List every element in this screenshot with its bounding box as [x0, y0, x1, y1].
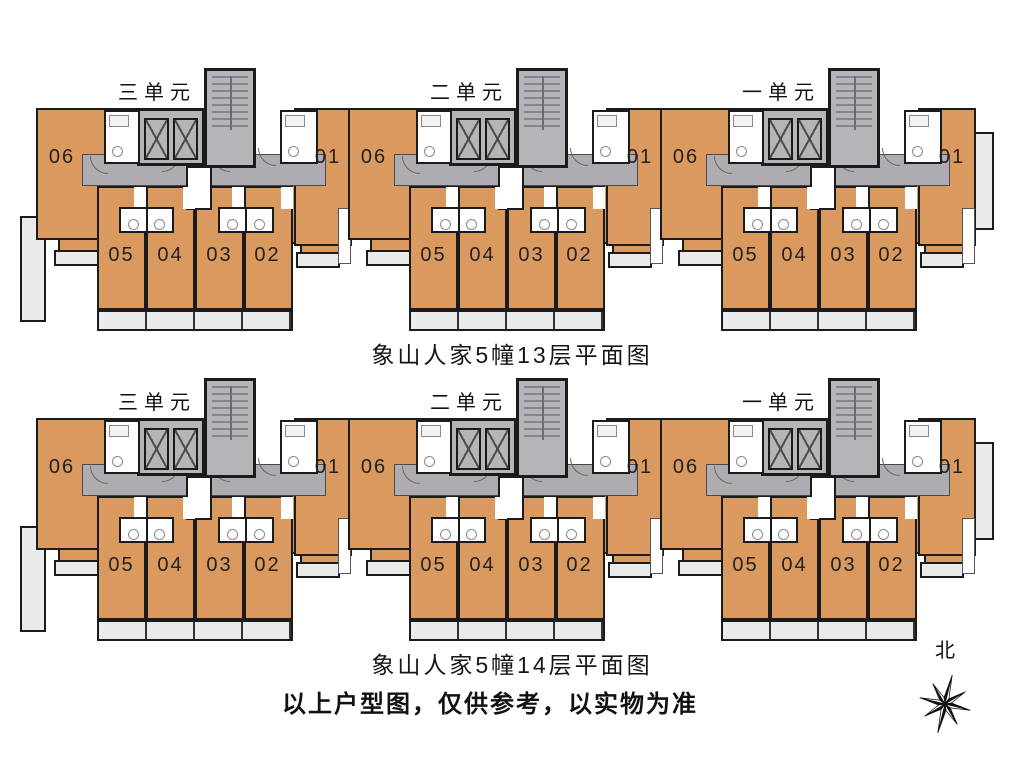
apartment-06-balcony — [54, 560, 100, 576]
elevator-icon — [173, 118, 198, 160]
apartment-number: 01 — [930, 456, 974, 479]
floor-plan-13f: 三单元 06 05 04 — [32, 68, 992, 370]
unit: 二单元 06 05 04 — [346, 378, 664, 646]
unit: 一单元 06 05 04 — [658, 378, 976, 646]
elevator-bank — [761, 108, 829, 166]
elevator-icon — [485, 118, 510, 160]
unit: 三单元 06 05 04 — [34, 68, 352, 336]
apartment-number: 03 — [509, 554, 554, 577]
floor-plan-canvas-14f: 三单元 06 05 04 — [32, 378, 992, 646]
stair-rail-icon — [230, 76, 232, 130]
elevator-icon — [485, 428, 510, 470]
unit: 三单元 06 05 04 — [34, 378, 352, 646]
bathrooms-05-04 — [119, 207, 174, 233]
apartment-06-balcony — [366, 560, 412, 576]
apartment-06-bathroom — [728, 420, 764, 474]
apartment-number: 03 — [821, 244, 866, 267]
apartment-number: 03 — [821, 554, 866, 577]
apartment-06-balcony — [54, 250, 100, 266]
unit: 一单元 06 05 04 — [658, 68, 976, 336]
disclaimer-text: 以上户型图，仅供参考，以实物为准 — [0, 684, 980, 719]
unit: 二单元 06 05 04 — [346, 68, 664, 336]
floor-plan-canvas-13f: 三单元 06 05 04 — [32, 68, 992, 336]
compass-north-label: 北 — [912, 634, 978, 663]
bathrooms-03-02 — [530, 207, 586, 233]
stair-rail-icon — [230, 386, 232, 440]
apartment-number: 03 — [197, 244, 242, 267]
staircase — [204, 68, 256, 168]
end-balcony-right — [974, 132, 994, 230]
end-balcony-right — [974, 442, 994, 540]
apartment-number: 04 — [772, 554, 817, 577]
apartment-06-balcony — [678, 560, 724, 576]
apartment-01-balcony — [296, 252, 340, 268]
apartment-number: 02 — [557, 554, 602, 577]
apartment-number: 02 — [557, 244, 602, 267]
balcony-band — [409, 620, 605, 641]
apartment-number: 04 — [772, 244, 817, 267]
apartment-06-bathroom — [416, 420, 452, 474]
stair-rail-icon — [542, 386, 544, 440]
balcony-band — [97, 620, 293, 641]
stair-rail-icon — [854, 386, 856, 440]
elevator-icon — [768, 118, 793, 160]
light-well-shaft — [962, 208, 975, 264]
apartment-01-balcony — [296, 562, 340, 578]
bathrooms-03-02 — [218, 207, 274, 233]
staircase — [828, 378, 880, 478]
apartment-number: 01 — [930, 146, 974, 169]
balcony-band — [721, 310, 917, 331]
elevator-bank — [137, 418, 205, 476]
bathrooms-03-02 — [218, 517, 274, 543]
floor-plan-sheet: 三单元 06 05 04 — [0, 0, 1024, 768]
apartment-number: 06 — [352, 146, 396, 169]
apartment-number: 04 — [460, 554, 505, 577]
elevator-icon — [173, 428, 198, 470]
entry-closets — [721, 187, 917, 209]
bathrooms-05-04 — [743, 517, 798, 543]
apartment-number: 01 — [618, 456, 662, 479]
apartment-number: 04 — [460, 244, 505, 267]
elevator-icon — [456, 118, 481, 160]
apartment-number: 01 — [618, 146, 662, 169]
bathrooms-03-02 — [842, 517, 898, 543]
floor-plan-14f: 三单元 06 05 04 — [32, 378, 992, 680]
balcony-band — [409, 310, 605, 331]
apartment-number: 06 — [664, 146, 708, 169]
apartment-number: 02 — [869, 554, 914, 577]
apartment-number: 05 — [99, 554, 144, 577]
apartment-06-bathroom — [104, 420, 140, 474]
apartment-06-bathroom — [416, 110, 452, 164]
apartment-number: 02 — [245, 554, 290, 577]
apartment-number: 05 — [723, 554, 768, 577]
bathrooms-05-04 — [119, 517, 174, 543]
elevator-icon — [797, 428, 822, 470]
apartment-number: 02 — [245, 244, 290, 267]
apartment-number: 06 — [40, 146, 84, 169]
bathrooms-03-02 — [530, 517, 586, 543]
apartment-number: 04 — [148, 244, 193, 267]
elevator-icon — [456, 428, 481, 470]
apartment-01-balcony — [608, 252, 652, 268]
stair-rail-icon — [542, 76, 544, 130]
bathrooms-05-04 — [431, 207, 486, 233]
apartment-number: 03 — [509, 244, 554, 267]
apartment-number: 06 — [352, 456, 396, 479]
elevator-bank — [137, 108, 205, 166]
apartment-number: 01 — [306, 146, 350, 169]
apartment-06-balcony — [678, 250, 724, 266]
compass: 北 — [912, 634, 978, 748]
apartment-06-balcony — [366, 250, 412, 266]
elevator-bank — [449, 418, 517, 476]
apartment-01-balcony — [920, 252, 964, 268]
apartment-number: 06 — [664, 456, 708, 479]
apartment-number: 03 — [197, 554, 242, 577]
staircase — [516, 378, 568, 478]
compass-rose-icon — [915, 665, 975, 743]
elevator-icon — [144, 428, 169, 470]
staircase — [516, 68, 568, 168]
entry-closets — [97, 187, 293, 209]
light-well-shaft — [962, 518, 975, 574]
bathrooms-03-02 — [842, 207, 898, 233]
elevator-icon — [144, 118, 169, 160]
entry-closets — [97, 497, 293, 519]
staircase — [828, 68, 880, 168]
balcony-band — [97, 310, 293, 331]
apartment-number: 02 — [869, 244, 914, 267]
elevator-bank — [449, 108, 517, 166]
elevator-bank — [761, 418, 829, 476]
floor-caption-14f: 象山人家5幢14层平面图 — [32, 646, 992, 680]
apartment-number: 05 — [723, 244, 768, 267]
apartment-number: 06 — [40, 456, 84, 479]
elevator-icon — [797, 118, 822, 160]
apartment-06-bathroom — [728, 110, 764, 164]
apartment-01-balcony — [608, 562, 652, 578]
entry-closets — [409, 497, 605, 519]
entry-closets — [721, 497, 917, 519]
bathrooms-05-04 — [431, 517, 486, 543]
elevator-icon — [768, 428, 793, 470]
staircase — [204, 378, 256, 478]
apartment-number: 05 — [99, 244, 144, 267]
stair-rail-icon — [854, 76, 856, 130]
apartment-01-balcony — [920, 562, 964, 578]
apartment-number: 05 — [411, 244, 456, 267]
apartment-number: 01 — [306, 456, 350, 479]
bathrooms-05-04 — [743, 207, 798, 233]
balcony-band — [721, 620, 917, 641]
apartment-number: 05 — [411, 554, 456, 577]
apartment-number: 04 — [148, 554, 193, 577]
apartment-06-bathroom — [104, 110, 140, 164]
floor-caption-13f: 象山人家5幢13层平面图 — [32, 336, 992, 370]
entry-closets — [409, 187, 605, 209]
